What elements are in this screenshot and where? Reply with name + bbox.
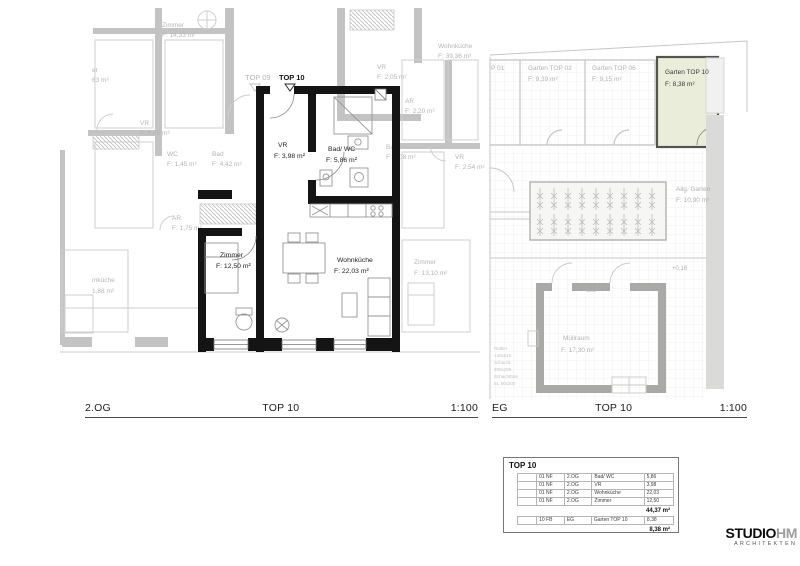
neighbor-band-upper	[706, 58, 724, 113]
table-cell	[518, 498, 537, 506]
room-label: VR	[377, 64, 386, 71]
room-area: 1,88 m²	[92, 288, 115, 295]
room-label: Bad/ WC	[328, 146, 355, 153]
table-cell	[518, 490, 537, 498]
room-label: Zimmer	[220, 252, 244, 259]
og-level-label: 2.OG	[85, 402, 111, 414]
table-cell: 2.OG	[564, 498, 592, 506]
table-cell: 01 NF	[537, 474, 565, 482]
logo-subtitle: ARCHITEKTEN	[715, 542, 797, 548]
room-area: F: 2,20 m²	[405, 108, 435, 115]
garden02-area: F: 9,39 m²	[528, 76, 558, 83]
shaft-note-line: Rüttler	[494, 346, 508, 351]
shaft-note-line: EL 90x200	[494, 381, 516, 386]
wall-label: ELMI	[586, 288, 597, 293]
allg-garten-label: Allg. Garten	[676, 186, 711, 193]
logo-studio: STUDIO	[726, 525, 777, 541]
top10-marker-label: TOP 10	[279, 73, 305, 82]
room-label: Bad	[212, 151, 224, 158]
plan-sheet: Zimmer F: 14,33 m² er 63 m² VR F: 6,88 m…	[0, 0, 800, 566]
room-area: F: 6,08 m²	[386, 154, 416, 161]
logo-hm: HM	[776, 525, 797, 541]
table-row: 01 NF 2.OG Wohnküche 22,03	[518, 490, 674, 498]
garden06-label: Garten TOP 06	[592, 65, 636, 72]
plan-eg: P 01 Garten TOP 02 F: 9,39 m² Garten TOP…	[490, 41, 747, 399]
room-area: F: 3,98 m²	[274, 153, 306, 160]
room-label: Wohnküche	[337, 257, 373, 264]
table-cell	[518, 474, 537, 482]
room-label: VR	[455, 154, 464, 161]
table-cell: 2.OG	[564, 474, 592, 482]
table-cell: 3,98	[644, 482, 673, 490]
garden-area-table: 10 FB EG Garten TOP 10 8,38	[517, 516, 674, 525]
room-label: Zimmer	[414, 259, 437, 266]
room-label: VR	[278, 142, 288, 149]
room-area: F: 4,42 m²	[212, 161, 242, 168]
bike-racks	[530, 182, 666, 240]
garden02-label: Garten TOP 02	[528, 65, 572, 72]
room-area: F: 13,10 m²	[414, 270, 448, 277]
room-area: F: 2,54 m²	[455, 164, 485, 171]
room-label: er	[92, 67, 99, 74]
shaft-note-line: Schacht	[494, 360, 511, 365]
eg-scale-label: 1:100	[720, 402, 747, 414]
room-label: mküche	[92, 277, 115, 284]
table-cell: 01 NF	[537, 498, 565, 506]
shaft-note-line: Schachttüre	[494, 374, 519, 379]
table-cell	[518, 517, 537, 525]
room-area: F: 1,75 m²	[172, 225, 202, 232]
level-mark: +0,16	[672, 266, 688, 272]
logo-wordmark: STUDIOHM	[715, 526, 797, 540]
shaft-note-line: 140x510	[494, 353, 512, 358]
room-area: F: 12,50 m²	[216, 263, 251, 270]
eg-unit-label: TOP 10	[595, 402, 632, 414]
garden01-label-fragment: P 01	[491, 65, 505, 72]
room-areas-table: 01 NF 2.OG Bad/ WC 5,86 01 NF 2.OG VR 3,…	[517, 473, 674, 506]
top10-marker-icon	[285, 84, 295, 91]
table-cell	[518, 482, 537, 490]
table-row: 01 NF 2.OG VR 3,98	[518, 482, 674, 490]
table-cell: Zimmer	[592, 498, 644, 506]
table-cell: Bad/ WC	[592, 474, 644, 482]
table-row: 01 NF 2.OG Zimmer 12,50	[518, 498, 674, 506]
room-area: F: 6,88 m²	[140, 130, 170, 137]
room-label: WC	[167, 151, 178, 158]
table-cell: 8,38	[644, 517, 673, 525]
area-table: TOP 10 01 NF 2.OG Bad/ WC 5,86 01 NF 2.O…	[503, 457, 679, 533]
room-area: F: 5,86 m²	[326, 157, 358, 164]
room-area: F: 1,45 m²	[167, 161, 197, 168]
table-cell: 5,86	[644, 474, 673, 482]
studio-hm-logo: STUDIOHM ARCHITEKTEN	[715, 526, 797, 548]
table-cell: 2.OG	[564, 482, 592, 490]
room-area: F: 2,05 m²	[377, 74, 407, 81]
neighbor-band	[706, 115, 724, 389]
plan-og-context: Zimmer F: 14,33 m² er 63 m² VR F: 6,88 m…	[60, 8, 485, 352]
table-cell: 10 FB	[537, 517, 565, 525]
total-value: 8,38 m²	[508, 525, 674, 535]
room-label: Wohnküche	[438, 43, 473, 50]
table-cell: 01 NF	[537, 490, 565, 498]
table-row: 10 FB EG Garten TOP 10 8,38	[518, 517, 674, 525]
muellraum-area: F: 17,30 m²	[561, 347, 595, 354]
plan-og-footer: 2.OG TOP 10 1:100	[85, 402, 478, 418]
room-label: VR	[140, 120, 149, 127]
table-cell: EG	[564, 517, 591, 525]
context-walls	[60, 8, 480, 347]
table-cell: 2.OG	[564, 490, 592, 498]
table-cell: Wohnküche	[592, 490, 644, 498]
room-label: Zimmer	[162, 22, 185, 29]
table-cell: 12,50	[644, 498, 673, 506]
og-unit-label: TOP 10	[262, 402, 299, 414]
top09-marker-label: TOP 09	[245, 73, 271, 82]
garden10-area: F: 8,38 m²	[665, 81, 695, 88]
drawing-canvas: Zimmer F: 14,33 m² er 63 m² VR F: 6,88 m…	[0, 0, 800, 566]
room-area: F: 22,03 m²	[334, 268, 369, 275]
table-row: 01 NF 2.OG Bad/ WC 5,86	[518, 474, 674, 482]
room-label: AR	[172, 215, 181, 222]
table-cell: 22,03	[644, 490, 673, 498]
table-cell: Garten TOP 10	[591, 517, 644, 525]
allg-garten-area: F: 10,90 m²	[676, 197, 710, 204]
room-label: AR	[405, 98, 414, 105]
muellraum-label: Müllraum	[563, 335, 590, 342]
og-scale-label: 1:100	[451, 402, 478, 414]
eg-level-label: EG	[492, 402, 508, 414]
plan-eg-footer: EG TOP 10 1:100	[492, 402, 747, 418]
table-cell: 01 NF	[537, 482, 565, 490]
shaft-note-line: 200x155	[494, 367, 512, 372]
room-area: F: 39,36 m²	[438, 53, 472, 60]
area-table-title: TOP 10	[509, 461, 674, 470]
garden10-label: Garten TOP 10	[665, 69, 709, 76]
table-cell: VR	[592, 482, 644, 490]
garden06-area: F: 9,15 m²	[592, 76, 622, 83]
room-area: F: 14,33 m²	[162, 32, 196, 39]
room-area: 63 m²	[92, 77, 109, 84]
subtotal-value: 44,37 m²	[508, 506, 674, 516]
